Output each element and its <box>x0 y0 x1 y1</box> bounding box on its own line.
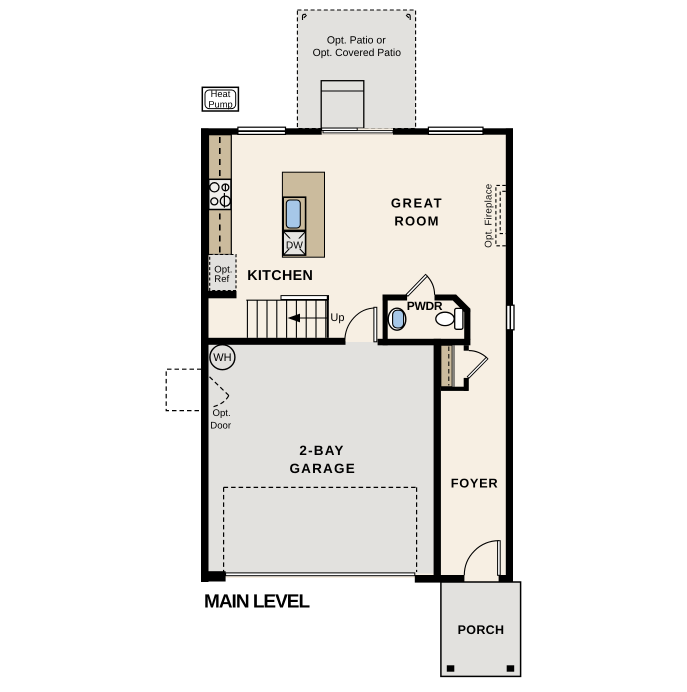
svg-text:ROOM: ROOM <box>394 214 439 229</box>
svg-text:PWDR: PWDR <box>407 299 443 313</box>
svg-text:2-BAY: 2-BAY <box>299 443 344 458</box>
svg-text:MAIN LEVEL: MAIN LEVEL <box>204 591 310 612</box>
svg-text:Door: Door <box>210 421 232 432</box>
svg-text:KITCHEN: KITCHEN <box>247 268 313 284</box>
svg-text:Opt. Patio or: Opt. Patio or <box>327 34 386 46</box>
svg-text:Opt. Covered Patio: Opt. Covered Patio <box>313 48 402 59</box>
svg-text:WH: WH <box>213 352 231 364</box>
svg-text:PORCH: PORCH <box>458 623 505 637</box>
svg-text:DW: DW <box>286 241 303 252</box>
svg-text:Opt.: Opt. <box>213 408 231 419</box>
svg-text:GREAT: GREAT <box>391 196 443 211</box>
svg-text:Heat: Heat <box>211 89 231 99</box>
svg-text:Up: Up <box>330 312 344 324</box>
svg-text:FOYER: FOYER <box>451 476 499 491</box>
svg-text:Ref: Ref <box>214 274 229 285</box>
svg-text:Opt. Fireplace: Opt. Fireplace <box>483 183 494 248</box>
svg-text:GARAGE: GARAGE <box>289 461 355 476</box>
svg-text:Pump: Pump <box>208 100 232 110</box>
